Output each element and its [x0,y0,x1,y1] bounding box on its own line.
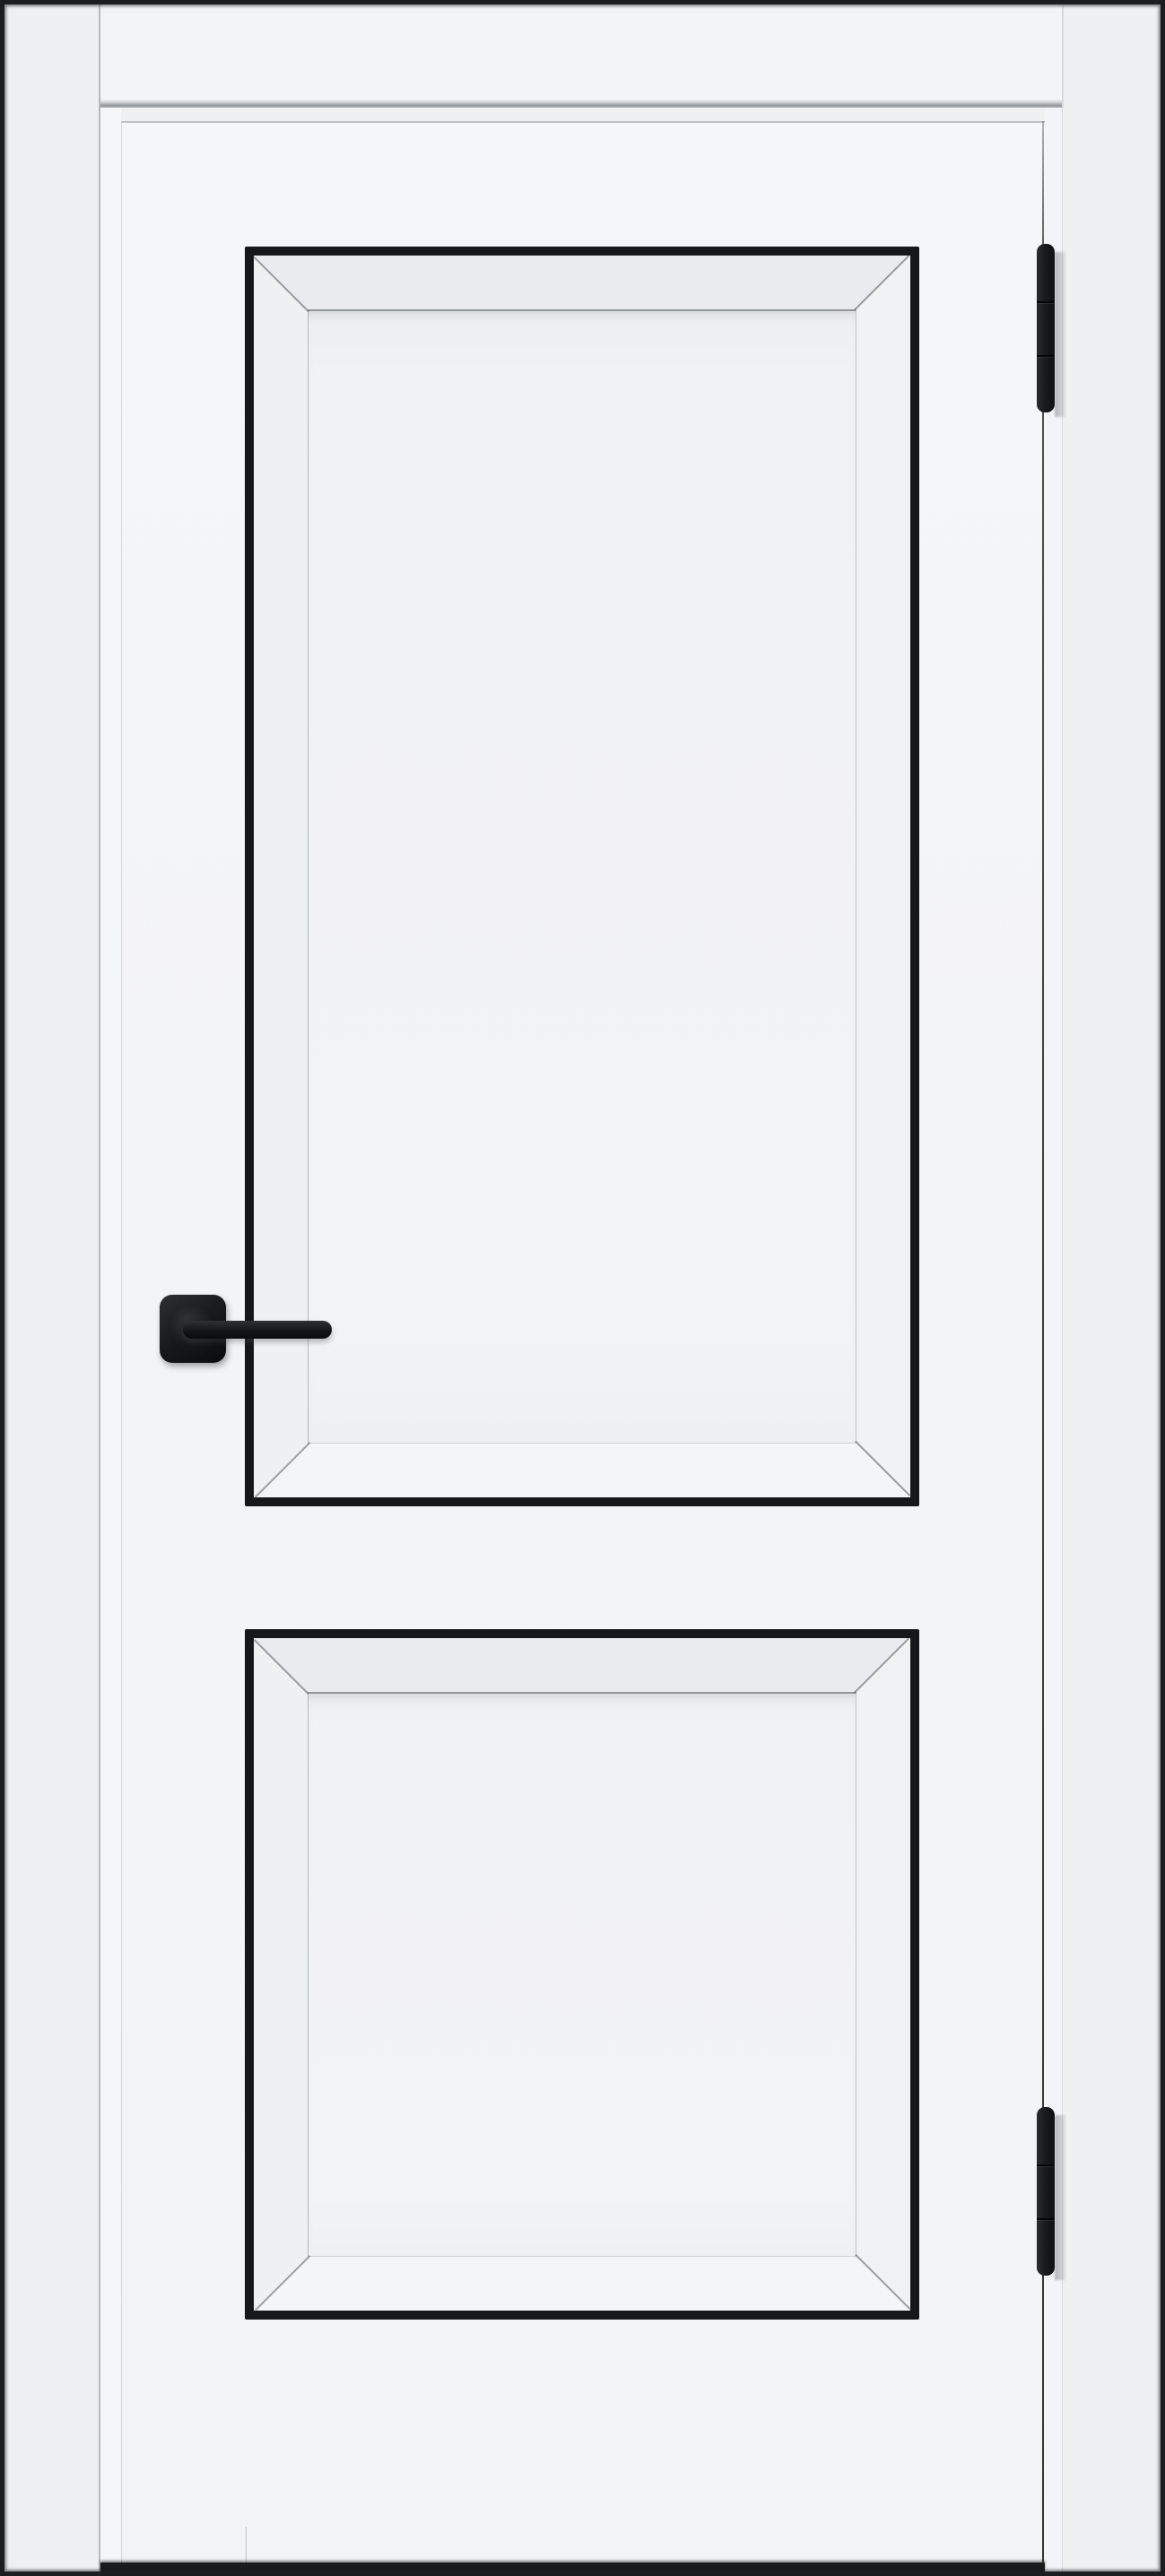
bottom-hinge [1037,2107,1055,2276]
stile-rail-joint-seam [246,2527,247,2566]
top-hinge-shadow [1055,252,1065,417]
product-photo [0,0,1165,2576]
hinge-knuckle-seam [1037,2164,1055,2166]
lower-panel-bevel [254,1638,910,2311]
door-handle-lever [183,1321,332,1339]
under-door-shadow [100,2563,1045,2573]
lower-panel-trim [245,1629,919,2320]
door-frame-header [100,0,1064,108]
hinge-knuckle-seam [1037,2218,1055,2220]
lower-panel-field [308,1692,856,2257]
upper-panel-trim [245,247,919,1506]
hinge-knuckle-seam [1037,355,1055,357]
top-hinge [1037,244,1055,412]
door-frame-header-shadow [100,100,1062,108]
upper-panel-bevel [254,256,910,1497]
door-frame-left-jamb [100,108,121,2576]
bottom-hinge-shadow [1055,2115,1065,2280]
upper-panel-field [308,309,856,1444]
hinge-knuckle-seam [1037,301,1055,303]
